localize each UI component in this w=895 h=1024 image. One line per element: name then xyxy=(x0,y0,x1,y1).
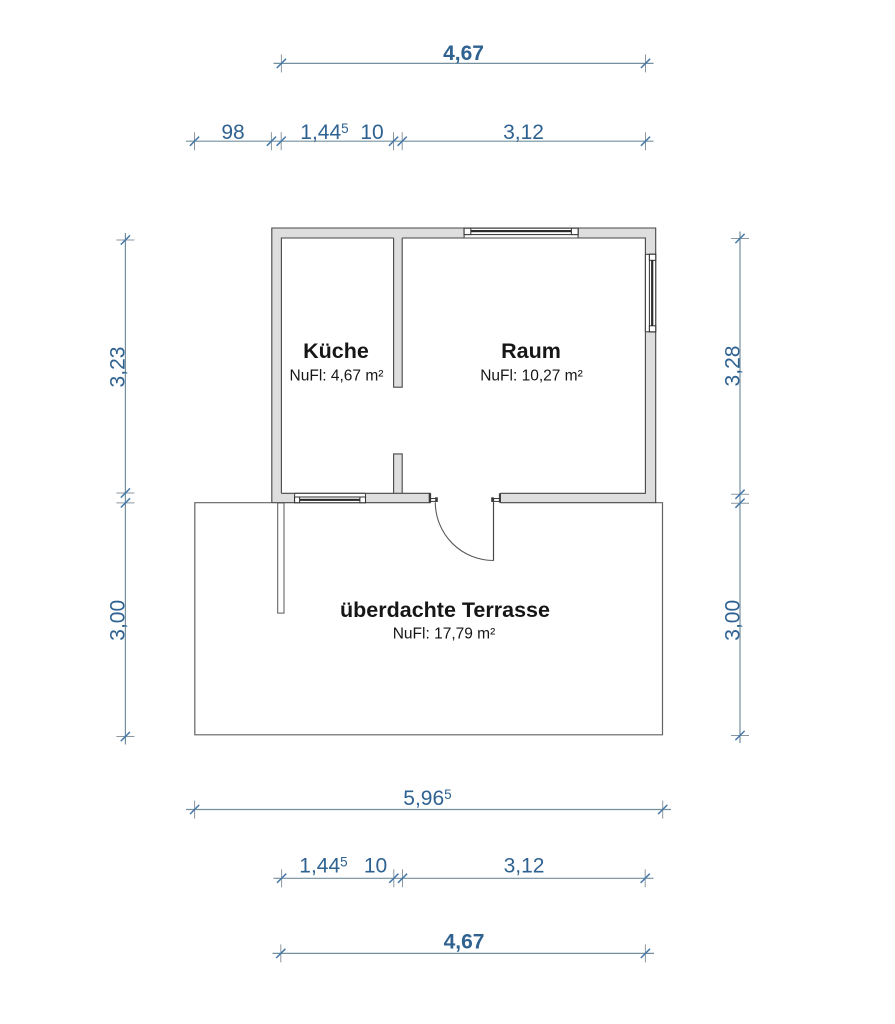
svg-text:3,00: 3,00 xyxy=(106,600,129,641)
svg-text:3,12: 3,12 xyxy=(503,121,544,144)
svg-text:4,67: 4,67 xyxy=(443,42,484,65)
svg-text:3,00: 3,00 xyxy=(721,600,744,641)
svg-text:Raum: Raum xyxy=(501,339,561,363)
svg-text:10: 10 xyxy=(364,854,387,877)
svg-text:3,23: 3,23 xyxy=(106,347,129,388)
svg-text:NuFl: 4,67 m²: NuFl: 4,67 m² xyxy=(290,367,384,384)
svg-text:98: 98 xyxy=(221,121,244,144)
svg-text:überdachte Terrasse: überdachte Terrasse xyxy=(340,598,550,622)
svg-text:NuFl: 17,79 m²: NuFl: 17,79 m² xyxy=(393,626,496,643)
svg-text:10: 10 xyxy=(360,121,383,144)
svg-text:4,67: 4,67 xyxy=(444,931,485,954)
svg-text:3,12: 3,12 xyxy=(504,854,545,877)
svg-text:NuFl: 10,27 m²: NuFl: 10,27 m² xyxy=(480,367,583,384)
svg-text:3,28: 3,28 xyxy=(721,346,744,387)
svg-text:Küche: Küche xyxy=(303,339,369,363)
